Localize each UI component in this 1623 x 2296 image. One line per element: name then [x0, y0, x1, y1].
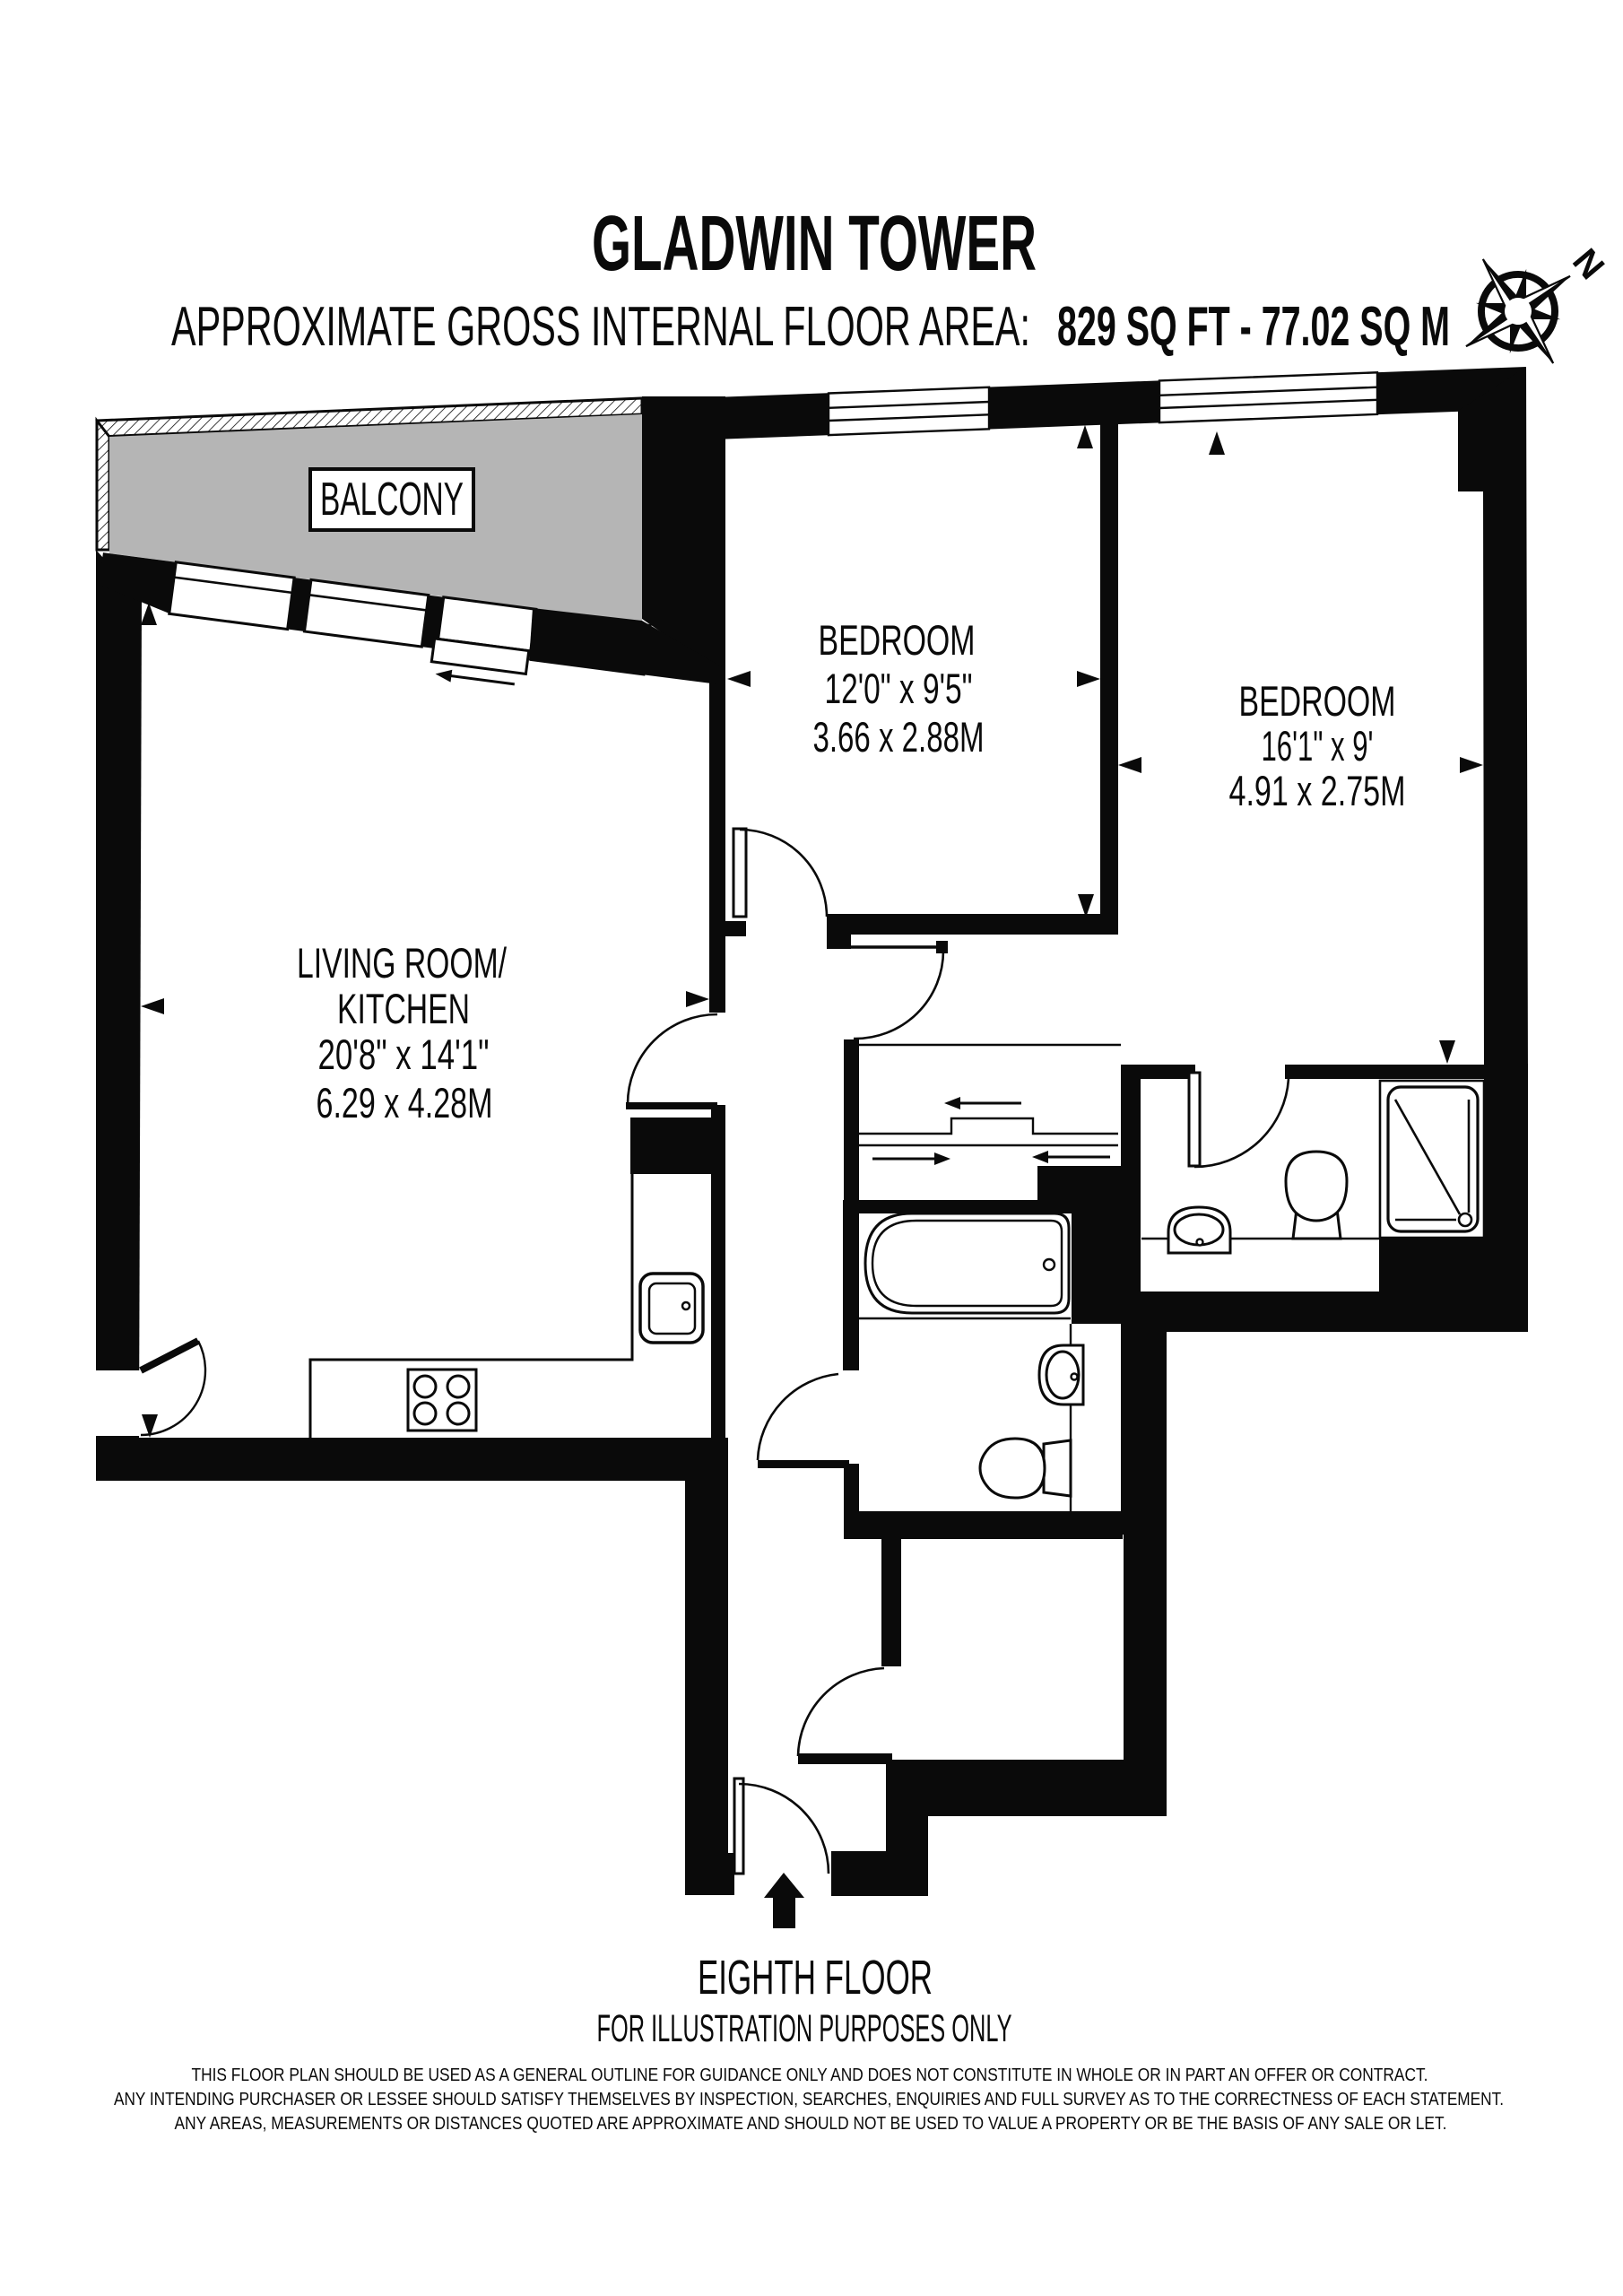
svg-text:6.29 x 4.28M: 6.29 x 4.28M — [317, 1079, 493, 1126]
svg-text:BEDROOM: BEDROOM — [1239, 677, 1396, 725]
svg-text:EIGHTH FLOOR: EIGHTH FLOOR — [698, 1951, 933, 2005]
svg-text:BEDROOM: BEDROOM — [819, 616, 976, 664]
svg-text:12'0" x 9'5": 12'0" x 9'5" — [825, 665, 973, 712]
svg-text:LIVING ROOM/: LIVING ROOM/ — [297, 939, 508, 987]
svg-text:4.91 x 2.75M: 4.91 x 2.75M — [1229, 767, 1406, 814]
svg-text:ANY INTENDING PURCHASER OR LES: ANY INTENDING PURCHASER OR LESSEE SHOULD… — [114, 2089, 1504, 2109]
svg-text:GLADWIN TOWER: GLADWIN TOWER — [592, 200, 1037, 287]
svg-text:THIS FLOOR PLAN SHOULD BE USED: THIS FLOOR PLAN SHOULD BE USED AS A GENE… — [192, 2065, 1428, 2085]
svg-text:ANY AREAS, MEASUREMENTS OR DIS: ANY AREAS, MEASUREMENTS OR DISTANCES QUO… — [175, 2113, 1447, 2134]
svg-text:FOR ILLUSTRATION PURPOSES ONLY: FOR ILLUSTRATION PURPOSES ONLY — [597, 2007, 1012, 2050]
svg-text:829 SQ FT - 77.02 SQ M: 829 SQ FT - 77.02 SQ M — [1057, 296, 1450, 358]
svg-text:KITCHEN: KITCHEN — [337, 985, 470, 1032]
svg-text:APPROXIMATE GROSS INTERNAL FLO: APPROXIMATE GROSS INTERNAL FLOOR AREA: — [171, 296, 1030, 358]
svg-text:20'8" x 14'1": 20'8" x 14'1" — [318, 1031, 490, 1078]
svg-text:BALCONY: BALCONY — [320, 474, 464, 526]
svg-text:3.66 x 2.88M: 3.66 x 2.88M — [813, 713, 985, 761]
svg-text:16'1" x 9': 16'1" x 9' — [1262, 722, 1374, 770]
